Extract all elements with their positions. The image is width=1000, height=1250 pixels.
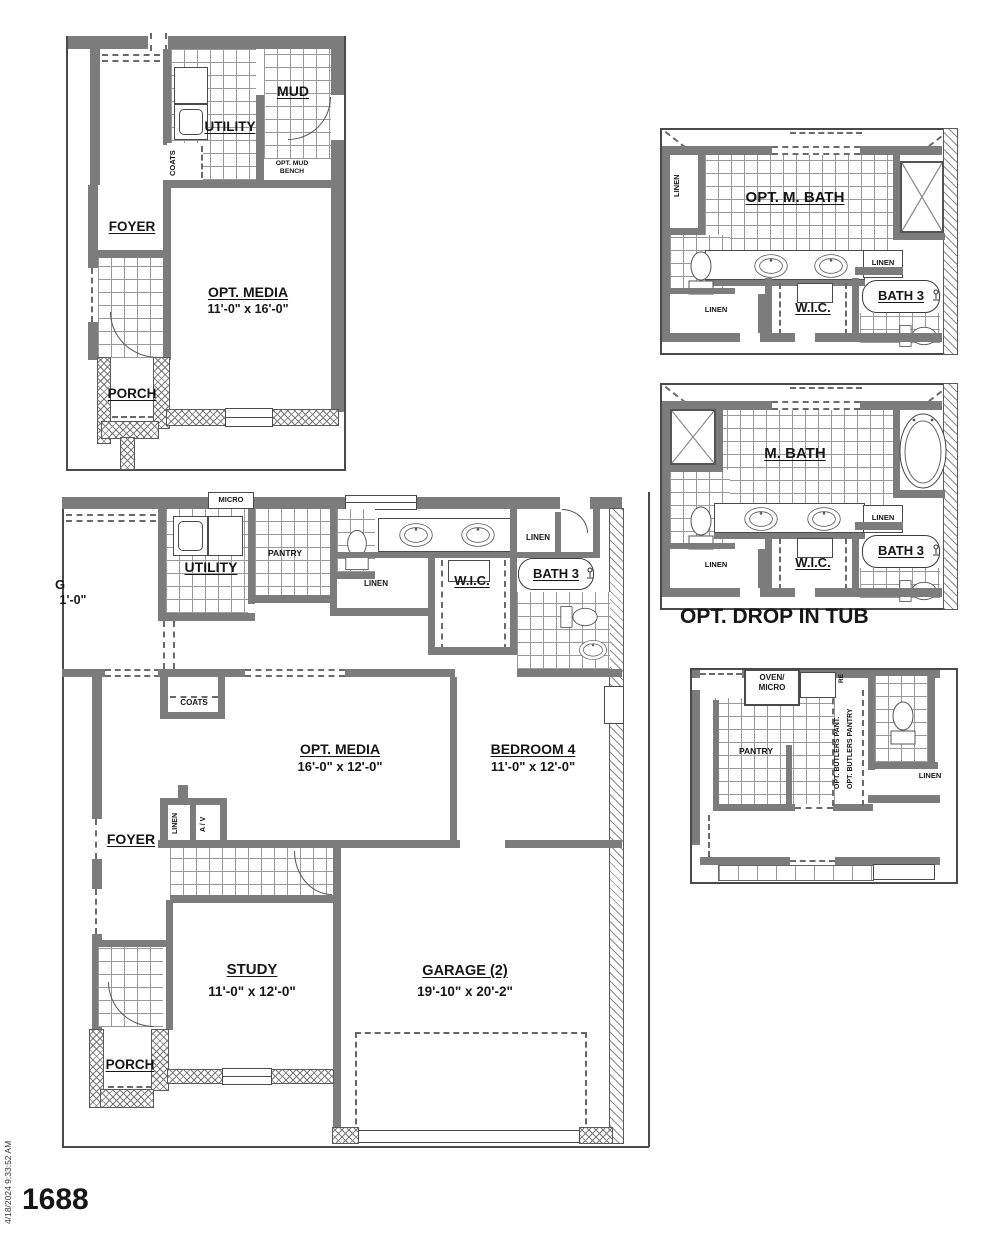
wall — [68, 36, 344, 49]
room-label-bath3: BATH 3 — [533, 567, 579, 581]
room-label-pantry: PANTRY — [733, 747, 779, 756]
label-opt-butlers-pant: OPT. BUTLERS PANT. — [834, 700, 842, 805]
sink-fixture — [742, 506, 780, 532]
room-label-coats: COATS — [169, 146, 177, 180]
wall — [158, 840, 622, 848]
optional-wall-dashed — [772, 146, 860, 148]
room-label-wic: W.I.C. — [442, 574, 502, 588]
faucet-icon — [931, 288, 941, 304]
exterior-wall — [580, 1128, 612, 1143]
plan-d-clip-border — [956, 668, 958, 884]
label-micro: MICRO — [209, 496, 253, 504]
room-label-pantry: PANTRY — [262, 549, 308, 558]
shower-stall — [900, 161, 944, 233]
closet-rod — [845, 538, 847, 590]
sink-fixture — [805, 506, 843, 532]
label-micro: MICRO — [746, 684, 798, 693]
wall — [428, 557, 435, 655]
optional-boundary-dashed — [708, 815, 710, 857]
wall — [868, 672, 875, 770]
door-opening — [460, 840, 505, 848]
room-label-linen: LINEN — [172, 806, 180, 842]
wall — [190, 805, 196, 845]
room-label-linen: LINEN — [692, 306, 740, 314]
room-dim-opt-media: 11'-0" x 16'-0" — [188, 303, 308, 317]
room-dim-garage: 19'-10" x 20'-2" — [407, 985, 523, 1000]
shower-x — [672, 411, 714, 463]
window — [95, 889, 97, 934]
cased-opening — [245, 675, 345, 677]
label-ref: RE — [838, 670, 845, 686]
garage-door-outline — [355, 1032, 587, 1134]
room-label-porch: PORCH — [106, 387, 158, 402]
plan-a-clip-border — [66, 36, 68, 471]
ceiling-break-line — [790, 387, 862, 389]
wall — [893, 490, 945, 498]
room-label-mud: MUD — [264, 84, 322, 99]
plan-a-clip-border — [344, 36, 346, 471]
wall — [330, 608, 428, 616]
window — [88, 268, 98, 322]
wall — [662, 543, 735, 549]
wall — [88, 322, 98, 360]
wall — [220, 805, 227, 845]
sink-fixture — [812, 253, 850, 279]
closet-rod — [504, 560, 506, 650]
wall — [662, 401, 670, 597]
ceiling-break-line — [790, 132, 862, 134]
room-label-linen: LINEN — [692, 561, 740, 569]
wall — [160, 798, 227, 805]
sink-fixture — [398, 522, 434, 548]
caption-opt-drop-in-tub: OPT. DROP IN TUB — [680, 605, 865, 628]
window — [91, 268, 93, 322]
porch-step — [101, 1090, 153, 1107]
garage-door-opening — [358, 1130, 580, 1143]
door-opening — [740, 333, 760, 342]
wall — [256, 95, 264, 185]
room-label-av: A / V — [200, 806, 208, 842]
wall — [248, 595, 337, 603]
wall — [170, 895, 333, 903]
room-dim-clipped: 1'-0" — [50, 594, 96, 608]
room-label-opt-m-bath: OPT. M. BATH — [728, 190, 862, 207]
plan-a-clip-border — [66, 469, 345, 471]
wall — [450, 677, 457, 845]
wall — [517, 669, 622, 677]
room-label-garage: GARAGE (2) — [413, 964, 517, 980]
room-label-linen: LINEN — [861, 259, 905, 267]
wall — [92, 859, 102, 889]
wall — [90, 250, 167, 258]
room-label-foyer: FOYER — [104, 220, 160, 235]
wall — [692, 690, 700, 845]
toilet-fixture — [888, 700, 918, 746]
door-opening — [795, 333, 815, 342]
room-label-linen: LINEN — [905, 772, 955, 780]
plan-number: 1688 — [22, 1183, 102, 1216]
room-label-linen: LINEN — [352, 580, 400, 589]
wall — [158, 613, 255, 621]
room-label-bedroom4: BEDROOM 4 — [478, 742, 588, 757]
shower-x — [902, 163, 942, 231]
room-dim-study: 11'-0" x 12'-0" — [198, 985, 306, 1000]
sink-fixture — [460, 522, 496, 548]
ceiling-break-line — [66, 520, 156, 522]
wall — [88, 185, 98, 268]
kitchen-counter — [873, 864, 935, 880]
door-opening — [560, 497, 590, 509]
wall — [668, 465, 723, 472]
main-clip-border — [62, 1146, 649, 1148]
wall — [893, 233, 945, 240]
cased-opening — [163, 621, 165, 669]
wall — [868, 795, 940, 803]
window — [92, 889, 102, 934]
room-label-bath3: BATH 3 — [878, 544, 924, 558]
washer-appliance — [178, 521, 203, 551]
wall — [510, 557, 517, 655]
exterior-wall — [333, 1128, 358, 1143]
main-clip-border — [648, 492, 650, 1147]
wall — [163, 180, 338, 188]
room-label-wic: W.I.C. — [783, 301, 843, 315]
wall — [855, 522, 903, 530]
door-swing-arc — [562, 509, 588, 533]
wall — [90, 49, 100, 185]
wall — [330, 509, 337, 608]
closet-rod — [779, 283, 781, 335]
exterior-wall — [610, 509, 623, 1143]
window — [222, 1076, 272, 1077]
window — [604, 686, 624, 724]
wall — [248, 509, 255, 604]
wall — [163, 188, 171, 360]
cased-opening — [105, 675, 160, 677]
wall — [593, 509, 600, 558]
wall — [330, 572, 375, 579]
washer-appliance — [174, 67, 208, 104]
bathtub: BATH 3 — [862, 280, 940, 313]
wall — [160, 805, 168, 845]
door-opening — [740, 588, 760, 597]
room-label-opt-media: OPT. MEDIA — [190, 285, 306, 300]
exterior-wall — [121, 438, 134, 469]
room-label-utility: UTILITY — [178, 560, 244, 575]
room-label-linen: LINEN — [518, 534, 558, 543]
optional-wall-dashed — [772, 401, 860, 403]
room-dim-opt-media: 16'-0" x 12'-0" — [280, 760, 400, 774]
faucet-icon — [931, 543, 941, 559]
wall — [716, 409, 723, 469]
cased-opening — [173, 621, 175, 669]
exterior-wall — [944, 129, 957, 354]
wall — [331, 140, 344, 412]
wall — [555, 512, 561, 555]
wall — [333, 848, 341, 1143]
ref-cabinet — [800, 672, 836, 698]
wall — [786, 745, 792, 807]
wall — [928, 672, 935, 767]
toilet-fixture — [559, 604, 599, 630]
porch-edge-dashed — [112, 416, 154, 418]
ceiling-break-line — [66, 514, 156, 516]
bathtub: BATH 3 — [862, 535, 940, 568]
wall — [160, 712, 225, 719]
room-label-opt-media: OPT. MEDIA — [285, 742, 395, 757]
bathtub: BATH 3 — [518, 558, 594, 590]
optional-wall-dashed — [795, 807, 833, 809]
kitchen-counter — [718, 865, 874, 881]
wall — [92, 669, 102, 819]
ceiling-break-line — [102, 54, 160, 56]
room-label-porch: PORCH — [102, 1058, 158, 1073]
label-oven: OVEN/ — [746, 674, 798, 683]
plan-c-clip-border — [660, 383, 958, 385]
wall — [166, 900, 173, 1030]
room-label-foyer: FOYER — [102, 832, 160, 847]
label-opt-butlers-pantry: OPT. BUTLERS PANTRY — [847, 692, 855, 805]
sink-fixture — [752, 253, 790, 279]
wall — [670, 228, 705, 235]
room-label-linen: LINEN — [861, 514, 905, 522]
sink-fixture — [578, 636, 608, 664]
door-opening — [331, 95, 344, 140]
wall — [713, 804, 873, 811]
optional-wall-dashed — [790, 860, 835, 862]
shower-stall — [670, 409, 716, 465]
window — [92, 819, 102, 859]
wall — [158, 509, 166, 621]
room-label-study: STUDY — [202, 962, 302, 979]
label-opt-mud-bench: OPT. MUD — [272, 160, 312, 167]
floor-plan-sheet: COATS MUD UTILITY OPT. MUD BENCH FOYER O… — [0, 0, 1000, 1250]
window — [225, 417, 273, 418]
wall — [714, 533, 865, 539]
room-label-bath3: BATH 3 — [878, 289, 924, 303]
window — [95, 819, 97, 859]
porch-edge-dashed — [108, 1086, 152, 1088]
wall — [698, 155, 705, 233]
room-label-wic: W.I.C. — [783, 556, 843, 570]
wall — [62, 497, 622, 509]
room-label-utility: UTILITY — [200, 120, 260, 135]
wall — [510, 509, 517, 558]
closet-rod — [845, 283, 847, 335]
plan-d-clip-border — [690, 882, 958, 884]
print-timestamp: 4/18/2024 9:33:52 AM — [4, 1120, 13, 1245]
drop-in-tub — [898, 412, 948, 490]
optional-wall-dashed — [700, 673, 742, 675]
ceiling-break-line — [102, 60, 160, 62]
label-opt-mud-bench: BENCH — [272, 168, 312, 175]
faucet-icon — [585, 566, 595, 582]
wall — [855, 267, 903, 275]
wall — [662, 146, 670, 342]
dryer-appliance — [208, 516, 243, 556]
window — [345, 502, 417, 503]
wall — [705, 280, 865, 286]
toilet-fixture — [343, 528, 371, 572]
optional-boundary-dashed — [862, 690, 864, 806]
plan-b-clip-border — [660, 128, 958, 130]
wall — [662, 288, 735, 294]
closet-door-line — [201, 146, 203, 178]
wall — [92, 940, 168, 947]
wall — [163, 49, 171, 145]
wall — [331, 49, 344, 95]
room-dim-bedroom4: 11'-0" x 12'-0" — [478, 760, 588, 774]
wall — [868, 762, 938, 769]
porch-step — [102, 422, 158, 438]
window — [150, 33, 152, 51]
room-label-clipped: G — [52, 578, 68, 592]
cased-opening — [105, 669, 160, 671]
room-label-linen: LINEN — [673, 163, 681, 208]
wall — [713, 700, 719, 808]
wall — [428, 647, 517, 655]
door-opening — [795, 588, 815, 597]
cased-opening — [245, 669, 345, 671]
room-label-coats: COATS — [170, 699, 218, 708]
closet-rod — [779, 538, 781, 590]
wall — [893, 155, 900, 237]
room-label-m-bath: M. BATH — [740, 446, 850, 463]
plan-b-clip-border — [660, 353, 958, 355]
